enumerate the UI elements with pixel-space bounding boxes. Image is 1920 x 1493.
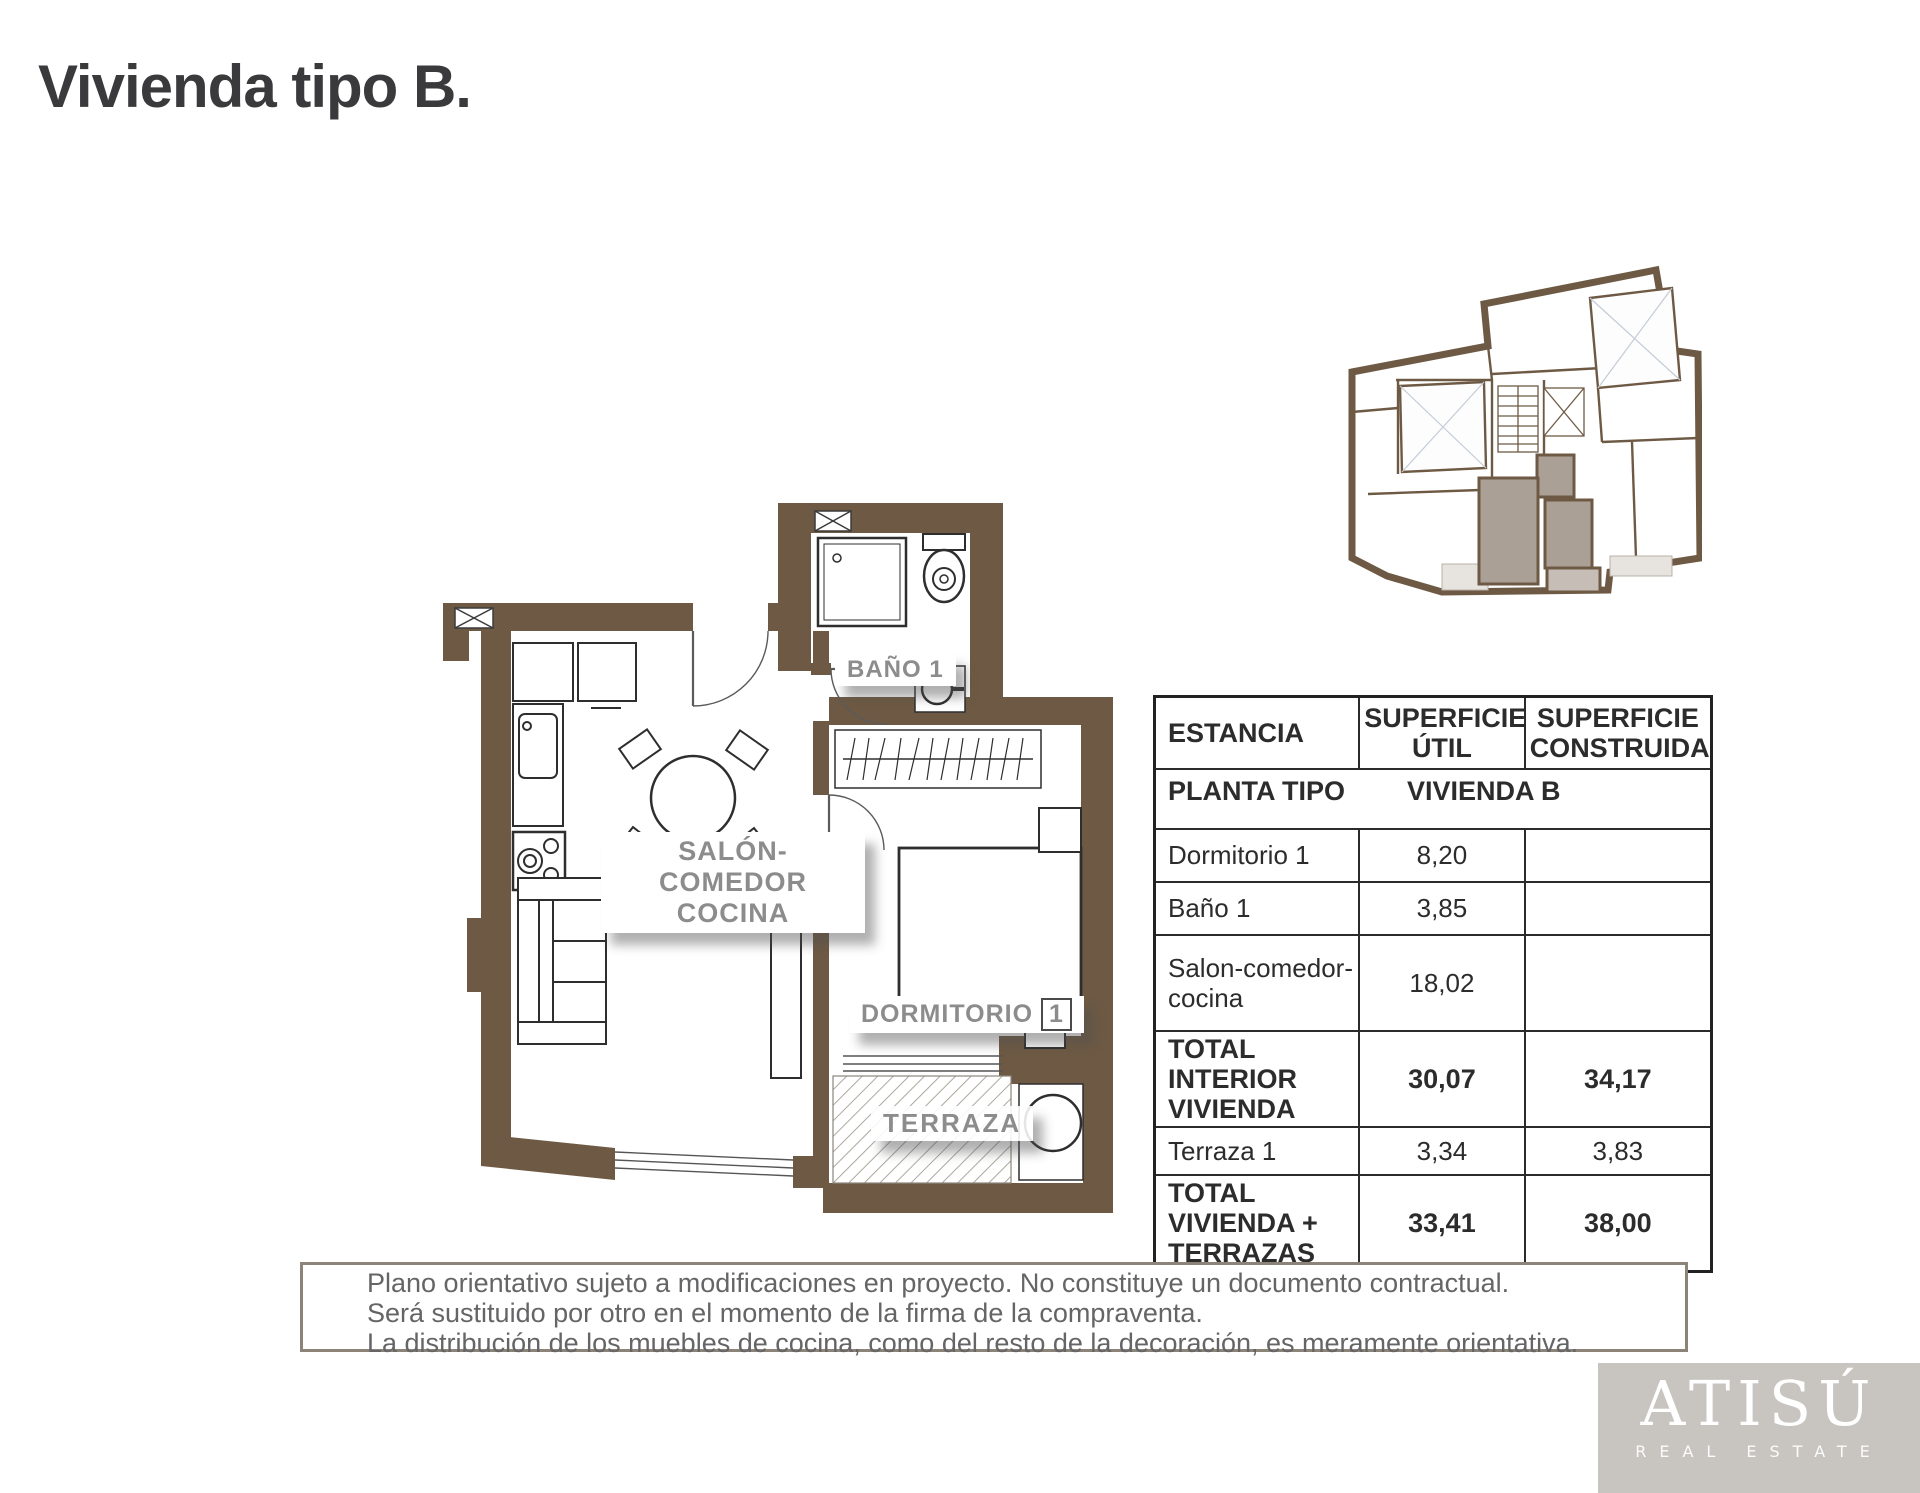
header-superficie-util: SUPERFICIE ÚTIL [1359,697,1525,770]
label-terrace: TERRAZA [871,1106,1033,1141]
disclaimer-line2: Será sustituido por otro en el momento d… [367,1298,1685,1328]
cell-util: 8,20 [1359,829,1525,882]
table-subheader-row: PLANTA TIPO VIVIENDA B [1155,769,1712,829]
label-bedroom: DORMITORIO 1 [849,996,1084,1033]
building-overview-drawing [1292,262,1702,600]
label-living-line1: SALÓN-COMEDOR [659,836,807,897]
cell-estancia: Baño 1 [1155,882,1360,935]
cell-util: 3,85 [1359,882,1525,935]
table-row: Baño 1 3,85 [1155,882,1712,935]
cell-util: 3,34 [1359,1127,1525,1175]
building-overview-plan [1292,262,1702,600]
disclaimer-line1: Plano orientativo sujeto a modificacione… [367,1268,1685,1298]
label-bedroom-text: DORMITORIO [861,1000,1033,1029]
table-row: Salon-comedor-cocina 18,02 [1155,935,1712,1031]
disclaimer-box: Plano orientativo sujeto a modificacione… [300,1262,1688,1352]
cell-estancia: Salon-comedor-cocina [1155,935,1360,1031]
label-bathroom: BAÑO 1 [835,654,956,686]
table-header-row: ESTANCIA SUPERFICIE ÚTIL SUPERFICIE CONS… [1155,697,1712,770]
cell-estancia: TOTAL VIVIENDA + TERRAZAS [1155,1175,1360,1272]
cell-util: 33,41 [1359,1175,1525,1272]
vivienda-b-label: VIVIENDA B [1407,776,1561,807]
logo-brand-text: ATISÚ [1598,1367,1920,1440]
table-row: Terraza 1 3,34 3,83 [1155,1127,1712,1175]
cell-construida: 38,00 [1525,1175,1712,1272]
cell-construida [1525,882,1712,935]
header-superficie-construida: SUPERFICIE CONSTRUIDA [1525,697,1712,770]
table-row-total-interior: TOTAL INTERIOR VIVIENDA 30,07 34,17 [1155,1031,1712,1127]
surfaces-table: ESTANCIA SUPERFICIE ÚTIL SUPERFICIE CONS… [1153,695,1713,1273]
logo-tagline-text: REAL ESTATE [1598,1442,1920,1461]
cell-construida: 34,17 [1525,1031,1712,1127]
apartment-floor-plan: BAÑO 1 SALÓN-COMEDOR COCINA DORMITORIO 1… [363,408,1118,1238]
page-title: Vivienda tipo B. [38,52,471,121]
header-estancia: ESTANCIA [1155,697,1360,770]
cell-estancia: Dormitorio 1 [1155,829,1360,882]
label-bedroom-number: 1 [1041,998,1072,1031]
cell-util: 30,07 [1359,1031,1525,1127]
label-living-line2: COCINA [677,898,790,928]
planta-tipo-label: PLANTA TIPO [1160,776,1345,807]
table-row: Dormitorio 1 8,20 [1155,829,1712,882]
cell-estancia: TOTAL INTERIOR VIVIENDA [1155,1031,1360,1127]
cell-construida [1525,829,1712,882]
subheader-cell: PLANTA TIPO VIVIENDA B [1155,769,1712,829]
cell-util: 18,02 [1359,935,1525,1031]
cell-construida [1525,935,1712,1031]
atisu-logo: ATISÚ REAL ESTATE [1598,1363,1920,1493]
cell-estancia: Terraza 1 [1155,1127,1360,1175]
label-living-room: SALÓN-COMEDOR COCINA [601,832,865,933]
disclaimer-line3: La distribución de los muebles de cocina… [367,1328,1685,1358]
cell-construida: 3,83 [1525,1127,1712,1175]
table-row-total-vivienda: TOTAL VIVIENDA + TERRAZAS 33,41 38,00 [1155,1175,1712,1272]
